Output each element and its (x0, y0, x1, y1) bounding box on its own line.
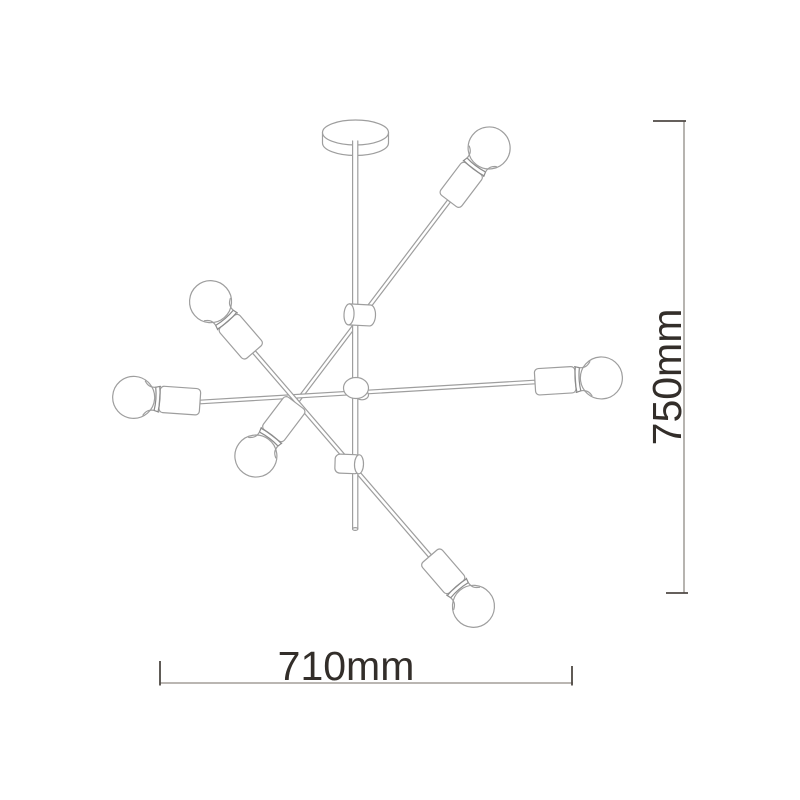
connector-bottom (335, 454, 364, 474)
connector-top (343, 304, 376, 327)
connector-middle-ball (344, 378, 369, 400)
bulb-right (534, 356, 624, 403)
chandelier-dimension-drawing: 710mm 750mm (0, 0, 800, 800)
chandelier (111, 119, 623, 636)
width-label: 710mm (278, 643, 415, 689)
bulb-top-right (432, 119, 518, 214)
dimension-diagram: 710mm 750mm (0, 0, 800, 800)
bulb-left (111, 375, 201, 423)
dimension-height: 750mm (644, 121, 690, 593)
arm-diagonal-steep (295, 200, 451, 404)
dimension-width: 710mm (160, 643, 573, 689)
height-label: 750mm (644, 309, 690, 446)
